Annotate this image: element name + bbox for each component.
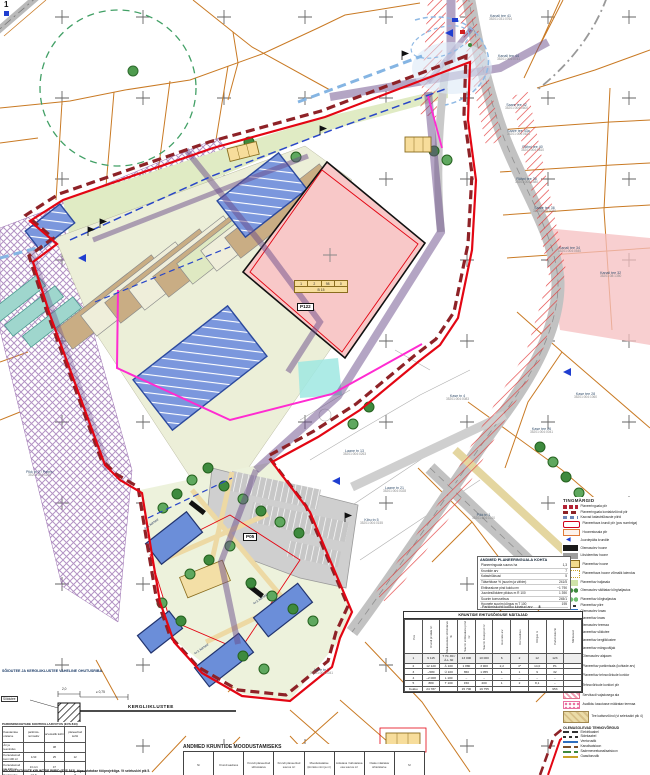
table-row: Äri ja teenindus38 <box>3 742 86 752</box>
legend-label: Planeeringuala kontaktvööndi piir <box>581 511 628 514</box>
parcel-label: Laane tn 1335201:004:0263 <box>343 449 366 457</box>
legend-label: Planeeritav parkimisala (kohtade arv) <box>583 665 636 668</box>
gas-pipe-icon <box>563 756 578 758</box>
parcel-label: Kase tn 435201:004:0083 <box>446 394 469 402</box>
legend-item: Planeeritava krundi piir (pos numbriga) <box>563 521 650 528</box>
legend-label: Sademeveekanalisatsioon <box>581 750 618 753</box>
table-row: 19 115T 70..80 / Ä-L 3013 00010 00062121… <box>405 653 582 663</box>
section-road-label: Sõidutee <box>1 696 18 702</box>
footnote: MOODUSTATAVATE KRUNTIDE PIIRID (EVS 843)… <box>2 769 242 773</box>
legend-label: Juurdepääs krundile <box>581 539 610 542</box>
legend-label: Hoonestusala piir <box>583 531 608 534</box>
pos-tag: P05 <box>243 533 257 541</box>
section-cycleway-label: KERGLIIKLUSTEE <box>128 704 174 709</box>
parcel-label: Kibu tn 535201:004:0155 <box>360 518 383 526</box>
legend-label: Kaovad katastriüksuste piirid <box>581 516 622 519</box>
parcel-label: Kase tee 2635201:004:0041 <box>530 427 553 435</box>
legend-label: Planeeritav mänguväljak <box>581 647 616 650</box>
access-arrow-icon <box>563 538 578 544</box>
plot-formation-title: ANDMED KRUNTIDE MOODUSTAMISEKS <box>183 744 425 750</box>
parcel-label: Vahe tn 235201:004:0041 <box>310 668 333 676</box>
legend-item: Gaasitorustik <box>563 755 650 758</box>
parcel-label: Saare tee 43a35201:004:0621 <box>507 129 530 137</box>
boundary-red-icon <box>563 505 578 509</box>
legend-label: Planeeritava hoone võimalik laiendus <box>583 572 636 575</box>
legend-subtitle: OLEMASOLEVAD TEHNOVÕRGUD <box>563 726 650 730</box>
sewer-icon <box>563 746 578 748</box>
storm-sewer-icon <box>563 751 578 753</box>
section-dimension: 2,0 <box>62 687 66 691</box>
legend-item: Planeeritav piire <box>563 604 650 607</box>
legend-label: Olemasolev säilitatav kõrghaljastus <box>581 589 631 592</box>
existing-tree <box>128 66 138 76</box>
parcel-label: Saare tee 3635201:004:0020 <box>533 206 556 214</box>
comm-cable-icon <box>563 736 578 738</box>
legend-label: Elektrikaabel <box>581 731 599 734</box>
public-road-area-icon <box>563 701 580 709</box>
legend-title: TINGMÄRGID <box>563 498 650 503</box>
legend-label: Planeeritava krundi piir (pos numbriga) <box>583 522 638 525</box>
building-rights-table: KRUNTIDE EHITUSÕIGUSE NÄITAJAD PosKrundi… <box>403 611 583 693</box>
parcel-label: Pikk tn 135201:004:1010 <box>472 513 495 521</box>
legend-label: Avalikku kasutusse määratav teemaa <box>583 703 636 706</box>
parcel-label: Kanali tee 3235201:08:1350 <box>600 271 621 279</box>
legend-item: Planeeritav haljasala <box>563 580 650 586</box>
boundary-maroon-icon <box>563 511 578 514</box>
legend-item: Sademeveekanalisatsioon <box>563 750 650 753</box>
legend-label: Olemasolev kraav <box>581 610 607 613</box>
legend-item: Planeeritava hoone võimalik laiendus <box>563 570 650 578</box>
legend-label: Olemasolev teemaa <box>581 624 609 627</box>
section-dimension: ≥ 0,75 <box>96 690 105 694</box>
legend-label: Likvideeritav hoone <box>581 554 608 557</box>
table-row: Kasutamise otstarveparkimis- normatiivar… <box>3 727 86 743</box>
legend-label: Tehnovõrkude koridori piir <box>583 684 620 687</box>
parking-calc-title: PARKIMISKOHTADE KONTROLLARVUTUS (EVS 843… <box>2 722 86 726</box>
legend-label: Planeeritav tehnovõrkude koridor <box>583 674 630 677</box>
parcel-label: Rähni tee 4035201:004:0810 <box>521 145 544 153</box>
legend-item: Planeeritav hoone <box>563 560 650 568</box>
legend-item: Likvideeritav hoone <box>563 553 650 559</box>
legend-item: Avalikku kasutusse määratav teemaa <box>563 701 650 709</box>
legend-item: Planeeringuala piir <box>563 505 650 509</box>
spec-cells: 1 2 98 0 <box>295 281 347 286</box>
legend-label: Veetorustik <box>581 740 597 743</box>
parcel-label: Pikk tn 2 / Parmu35201:004:0120 <box>26 470 53 478</box>
legend-label: Servituudi vajadusega ala <box>583 694 620 697</box>
parcel-label: Kanali tee 4135201:031:0764 <box>489 14 512 22</box>
legend-item: Tee kaitsevöönd (vt seletuskiri ptk 4) <box>563 711 650 723</box>
legend-label: Sidekaabel <box>581 735 597 738</box>
parcel-label: Kanali tee 4435201:004:0741 <box>497 54 520 62</box>
legend-utilities: ElektrikaabelSidekaabelVeetorustikKanali… <box>563 731 650 759</box>
legend-item: Planeeringuala kontaktvööndi piir <box>563 511 650 514</box>
legend-label: Planeeritav kõrghaljastus <box>581 598 617 601</box>
table-row: Kokku24 78715 70019 755953 <box>405 686 582 692</box>
legend-item: Kanalisatsioon <box>563 745 650 748</box>
legend-label: Tee kaitsevöönd (vt seletuskiri ptk 4) <box>592 715 643 718</box>
table-row: PosKrundi pindala m²Maakasutuse sihtotst… <box>405 620 582 654</box>
parcel-label: Laane tn 2135201:004:0028 <box>383 486 406 494</box>
power-cable-icon <box>563 731 578 733</box>
legend-label: Planeeringuala piir <box>581 505 607 508</box>
building-spec-table: 1 2 98 0 B 15 <box>294 280 348 293</box>
building-rights-title: KRUNTIDE EHITUSÕIGUSE NÄITAJAD <box>404 612 582 619</box>
legend-item: Sidekaabel <box>563 735 650 738</box>
legend-label: Planeeritav hoone <box>583 563 609 566</box>
parking-note: Parkimiskohti kokku lubatud arv8 <box>482 605 541 609</box>
legend-label: Planeeritav kergliiklustee <box>581 639 616 642</box>
plan-summary-box: ANDMED PLANEERINGUALA KOHTA Planeeringua… <box>477 556 571 610</box>
legend-label: Planeeritav sõidutee <box>581 631 610 634</box>
legend-label: Planeeritav haljasala <box>581 581 610 584</box>
road-protection-icon <box>563 711 589 723</box>
detail-plan-drawing: 1 Kanali tee 4135201:031:0764 Kanali tee… <box>0 0 650 775</box>
sheet-corner-mark: 1 <box>4 1 18 16</box>
legend-item: Olemasolev säilitatav kõrghaljastus <box>563 587 650 594</box>
legend-item: Hoonestusala piir <box>563 529 650 536</box>
legend-label: Gaasitorustik <box>581 755 600 758</box>
legend-item: Planeeritav kõrghaljastus <box>563 596 650 603</box>
legend-item: Elektrikaabel <box>563 731 650 734</box>
section-title: SÕIDUTEE JA KERGLIIKLUSTEE VAHELINE OHUT… <box>2 669 122 673</box>
table-row: Korterelamud kuni 100 m²1/102512 <box>3 752 86 762</box>
legend-item: Kaovad katastriüksuste piirid <box>563 516 650 519</box>
legend-label: Planeeritav piire <box>581 604 604 607</box>
parcel-label: Saare tee 4235201:004:0600 <box>505 103 528 111</box>
legend-item: Veetorustik <box>563 740 650 743</box>
plot-outline-red-icon <box>563 521 580 528</box>
summary-title: ANDMED PLANEERINGUALA KOHTA <box>480 558 568 562</box>
parcel-label: Rähni tee 3835201:004:1580 <box>515 177 538 185</box>
legend-label: Kanalisatsioon <box>581 745 602 748</box>
boundary-bluegray-icon <box>563 516 578 519</box>
parking-calc-table: PARKIMISKOHTADE KONTROLLARVUTUS (EVS 843… <box>2 722 86 775</box>
summary-table: Planeeringuala suurus ha1,3Kruntide arv7… <box>480 563 568 608</box>
pos-tag: P122 <box>297 303 314 311</box>
spec-caption: B 15 <box>295 286 347 292</box>
existing-building-icon <box>563 545 578 551</box>
legend-label: Olemasolev alajaam <box>583 655 612 658</box>
legend-label: Planeeritav kraav <box>581 617 606 620</box>
legend-item: Juurdepääs krundile <box>563 538 650 544</box>
water-pipe-icon <box>563 741 578 743</box>
legend-item: Olemasolev hoone <box>563 545 650 551</box>
legend-label: Olemasolev hoone <box>581 547 608 550</box>
sheet-number: 1 <box>4 1 18 9</box>
parcel-label: Kanali tee 3435201:004:0540 <box>558 246 581 254</box>
corner-blue-square <box>4 11 9 16</box>
parcel-label: Kase tee 2835201:004:1060 <box>574 392 597 400</box>
